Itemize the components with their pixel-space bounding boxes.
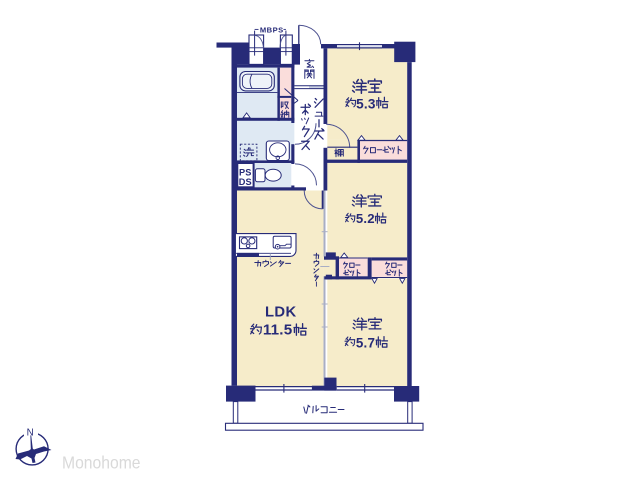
svg-text:N: N: [27, 427, 34, 438]
svg-text:5.2: 5.2: [356, 211, 375, 226]
svg-text:11.5: 11.5: [263, 322, 293, 339]
svg-text:5.7: 5.7: [356, 336, 375, 351]
svg-text:5.3: 5.3: [356, 96, 376, 111]
svg-text:DS: DS: [239, 177, 252, 187]
svg-text:Monohome: Monohome: [62, 452, 141, 472]
svg-text:LDK: LDK: [265, 304, 297, 320]
svg-text:PS: PS: [239, 167, 252, 177]
svg-text:MBPS: MBPS: [260, 25, 284, 34]
